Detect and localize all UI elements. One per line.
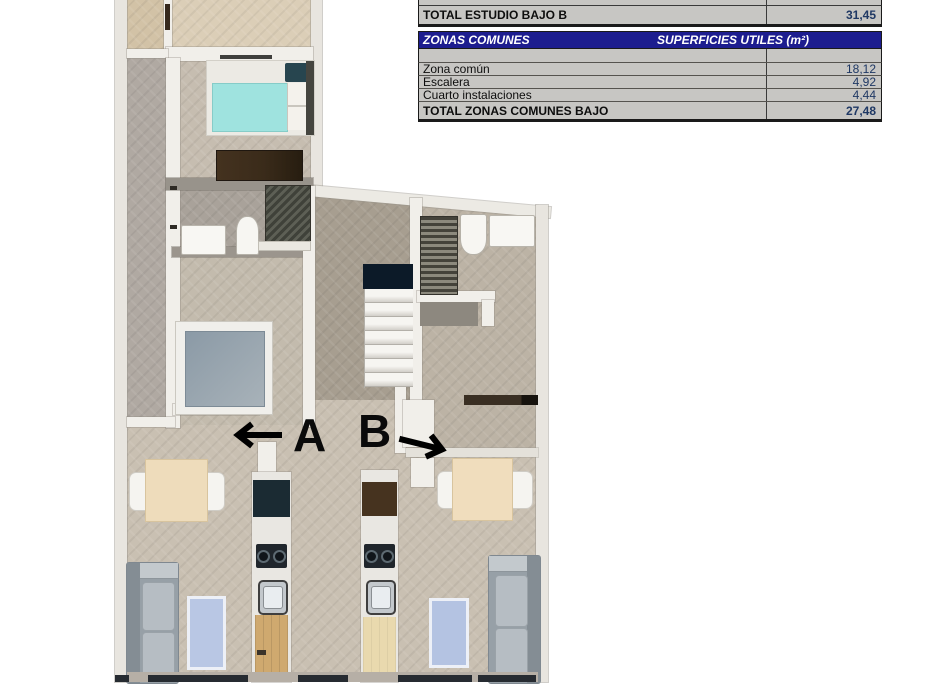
bed-mattress: [212, 83, 288, 132]
common-l-wall-vertical: [482, 300, 494, 326]
terrace-floor: [170, 0, 311, 49]
zonas-comunes-total-label: TOTAL ZONAS COMUNES BAJO: [419, 104, 766, 118]
door-hinge-tick: [170, 225, 177, 229]
table-row: Escalera 4,92: [418, 75, 882, 88]
kitchen-sink-a: [258, 580, 288, 615]
estudio-b-total-value: 31,45: [766, 6, 881, 24]
sofa-b: [488, 555, 541, 684]
bathroom-sink: [181, 225, 226, 255]
sideboard-bench: [464, 395, 538, 405]
kitchen-sink-b: [366, 580, 396, 615]
stairs-landing: [363, 264, 413, 289]
row-label: Cuarto instalaciones: [419, 88, 766, 102]
zonas-comunes-total-value: 27,48: [766, 102, 881, 119]
zonas-comunes-total-row: TOTAL ZONAS COMUNES BAJO 27,48: [418, 101, 882, 122]
corridor-cross-wall: [127, 417, 175, 427]
estudio-b-table: TOTAL ESTUDIO BAJO B 31,45: [418, 0, 882, 27]
kitchen-a-tall-unit: [253, 480, 290, 517]
table-row: Cuarto instalaciones 4,44: [418, 88, 882, 101]
washbasin: [489, 215, 535, 247]
sofa-b-back: [527, 556, 540, 683]
door-hinge-tick: [170, 186, 177, 190]
shower: [265, 185, 311, 245]
slatted-unit: [420, 216, 458, 295]
toilet-icon: [236, 216, 259, 255]
bed-sheet-panel: [287, 83, 307, 130]
sofa-a: [126, 562, 179, 684]
stairs: [364, 289, 413, 388]
kitchen-b-tall-unit: [362, 482, 397, 516]
arrow-left-icon: [232, 420, 284, 450]
understair-shadow: [420, 302, 478, 326]
screenshot-root: A B TOTAL ESTUDIO BAJO B 31,45 ZONAS COM…: [0, 0, 935, 682]
row-value: 4,92: [766, 76, 881, 88]
sofa-b-cushion: [495, 575, 528, 627]
sofa-a-cushion: [142, 582, 175, 631]
cooktop-b: [364, 544, 395, 568]
terrace-window-line: [220, 55, 272, 59]
shower-ledge: [258, 241, 311, 251]
row-label: Escalera: [419, 75, 766, 89]
unit-a-label: A: [293, 412, 326, 458]
wardrobe: [216, 150, 303, 181]
dining-table-a: [145, 459, 208, 522]
bed: [206, 60, 315, 136]
rug-b: [429, 598, 469, 668]
rug-a: [187, 596, 226, 670]
bottom-window: [115, 675, 129, 682]
patio-frame: [175, 321, 273, 415]
row-value: 4,44: [766, 89, 881, 101]
zonas-comunes-table: ZONAS COMUNES SUPERFICIES UTILES (m²) Zo…: [418, 31, 882, 122]
zonas-comunes-header: ZONAS COMUNES SUPERFICIES UTILES (m²): [418, 31, 882, 49]
bottom-window: [298, 675, 348, 682]
table-row-blank: [418, 49, 882, 62]
closet-bottom-wall: [127, 49, 168, 58]
unit-b-label-group: B: [358, 408, 452, 454]
unit-a-label-group: A: [232, 412, 326, 458]
bottom-window: [478, 675, 536, 682]
kitchen-a: [252, 472, 291, 682]
sofa-a-back: [127, 563, 140, 683]
door-frame-tick: [165, 4, 170, 30]
door-handle: [257, 650, 266, 655]
row-value: 18,12: [766, 63, 881, 75]
row-label: Zona común: [419, 62, 766, 76]
unit-b-jamb-bottom: [411, 458, 434, 487]
superficies-utiles-label: SUPERFICIES UTILES (m²): [657, 33, 809, 47]
unit-b-label: B: [358, 408, 391, 454]
table-row: Zona común 18,12: [418, 62, 882, 75]
dining-table-b: [452, 458, 513, 521]
bottom-window: [148, 675, 248, 682]
patio-glass: [185, 331, 265, 407]
estudio-b-total-label: TOTAL ESTUDIO BAJO B: [419, 8, 766, 22]
cooktop-a: [256, 544, 287, 568]
bed-headboard: [306, 61, 314, 135]
kitchen-b: [361, 470, 398, 682]
estudio-b-total-row: TOTAL ESTUDIO BAJO B 31,45: [418, 5, 882, 27]
bottom-window: [398, 675, 472, 682]
zonas-comunes-title: ZONAS COMUNES: [419, 33, 881, 47]
toilet-icon: [460, 214, 487, 255]
